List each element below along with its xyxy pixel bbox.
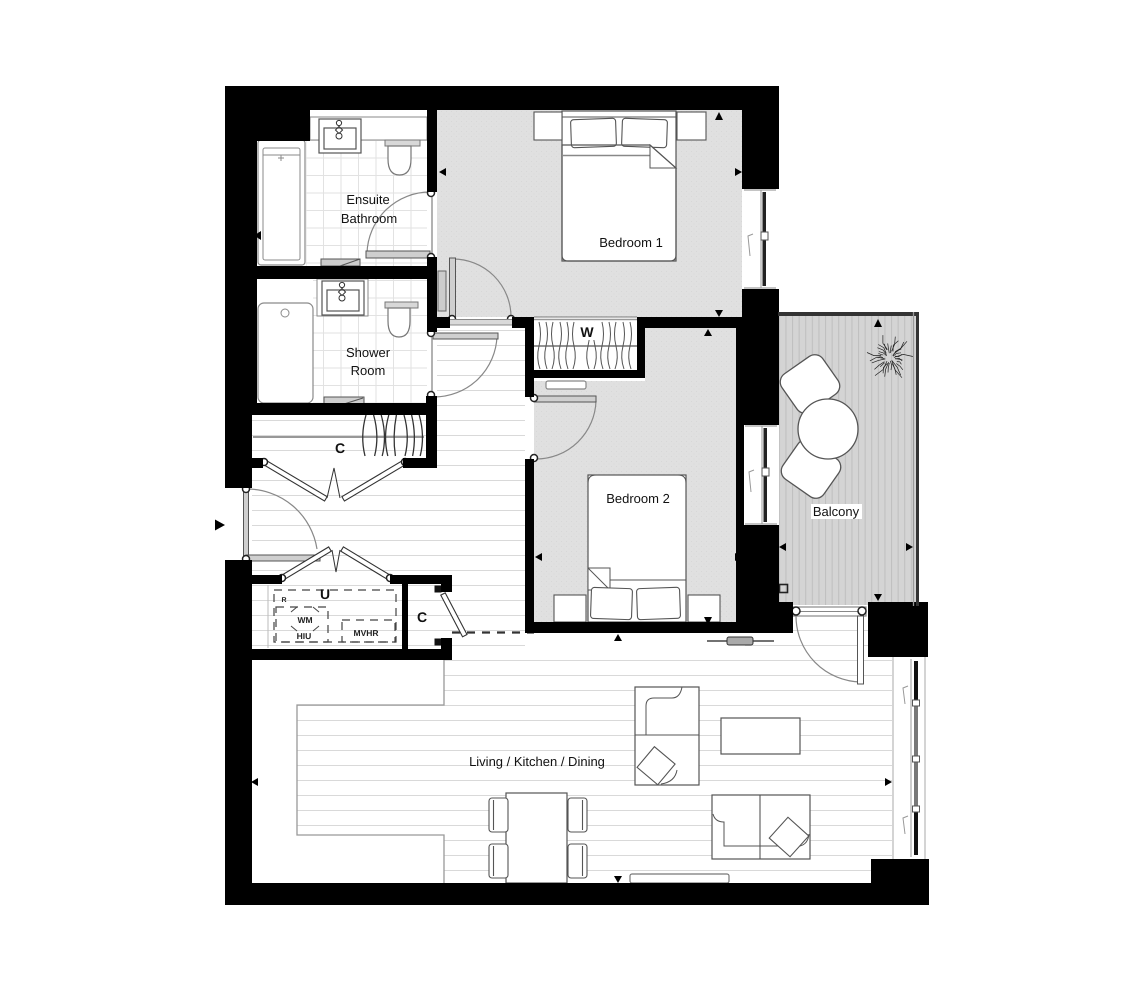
svg-text:Living / Kitchen / Dining: Living / Kitchen / Dining xyxy=(469,754,605,769)
svg-text:W: W xyxy=(580,324,594,340)
svg-text:MVHR: MVHR xyxy=(353,628,378,638)
svg-text:Ensuite: Ensuite xyxy=(346,192,389,207)
svg-text:Room: Room xyxy=(351,363,386,378)
svg-text:Bedroom 1: Bedroom 1 xyxy=(599,235,663,250)
svg-text:Shower: Shower xyxy=(346,345,391,360)
svg-text:U: U xyxy=(320,586,330,602)
svg-text:C: C xyxy=(417,609,427,625)
svg-text:Bedroom 2: Bedroom 2 xyxy=(606,491,670,506)
svg-text:HIU: HIU xyxy=(297,631,312,641)
svg-text:WM: WM xyxy=(297,615,312,625)
svg-text:Balcony: Balcony xyxy=(813,504,860,519)
svg-text:R: R xyxy=(281,597,286,604)
svg-text:C: C xyxy=(335,440,345,456)
svg-text:Bathroom: Bathroom xyxy=(341,211,397,226)
